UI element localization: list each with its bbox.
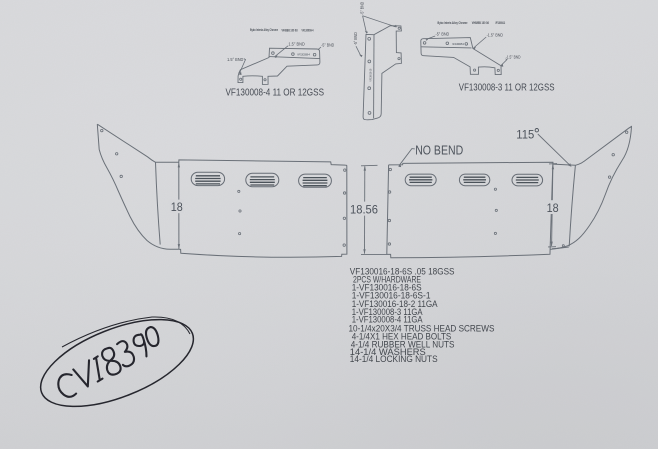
- svg-text:VF130008-4: VF130008-4: [302, 29, 315, 33]
- svg-text:-5° BND: -5° BND: [436, 32, 450, 37]
- svg-text:1.5° BND: 1.5° BND: [227, 57, 244, 62]
- svg-text:-1.5° BND: -1.5° BND: [487, 33, 504, 38]
- svg-text:VF130008-4: VF130008-4: [297, 52, 310, 56]
- svg-text:-5° BND: -5° BND: [353, 32, 358, 46]
- svg-text:18.56: 18.56: [350, 202, 378, 216]
- svg-text:NO BEND: NO BEND: [415, 144, 463, 158]
- svg-text:18: 18: [171, 200, 183, 214]
- svg-text:VHB/BB 100 08: VHB/BB 100 08: [472, 21, 489, 25]
- svg-text:VF/BB8 100 08: VF/BB8 100 08: [282, 28, 298, 32]
- svg-text:14-1/4 LOCKING NUTS: 14-1/4 LOCKING NUTS: [350, 354, 438, 364]
- svg-text:VF130008-3: VF130008-3: [452, 42, 464, 46]
- svg-text:-1.5° BND: -1.5° BND: [506, 54, 521, 59]
- svg-text:VF130008-3 11 OR 12GSS: VF130008-3 11 OR 12GSS: [459, 82, 555, 93]
- svg-text:Bybo Interia Alloy Chrome: Bybo Interia Alloy Chrome: [438, 21, 468, 25]
- svg-text:115: 115: [516, 128, 534, 142]
- svg-text:-5° BND: -5° BND: [321, 43, 335, 48]
- svg-text:1.5° BND: 1.5° BND: [288, 41, 305, 46]
- svg-text:Bybo Interia Alloy Chrome: Bybo Interia Alloy Chrome: [250, 28, 278, 32]
- svg-text:VF130008-4 11 OR 12GSS: VF130008-4 11 OR 12GSS: [226, 87, 325, 98]
- svg-text:-5° BND: -5° BND: [359, 1, 364, 15]
- svg-text:18: 18: [547, 201, 559, 215]
- svg-text:VF130016-18: VF130016-18: [369, 68, 373, 82]
- svg-text:VF130008-3: VF130008-3: [495, 21, 505, 25]
